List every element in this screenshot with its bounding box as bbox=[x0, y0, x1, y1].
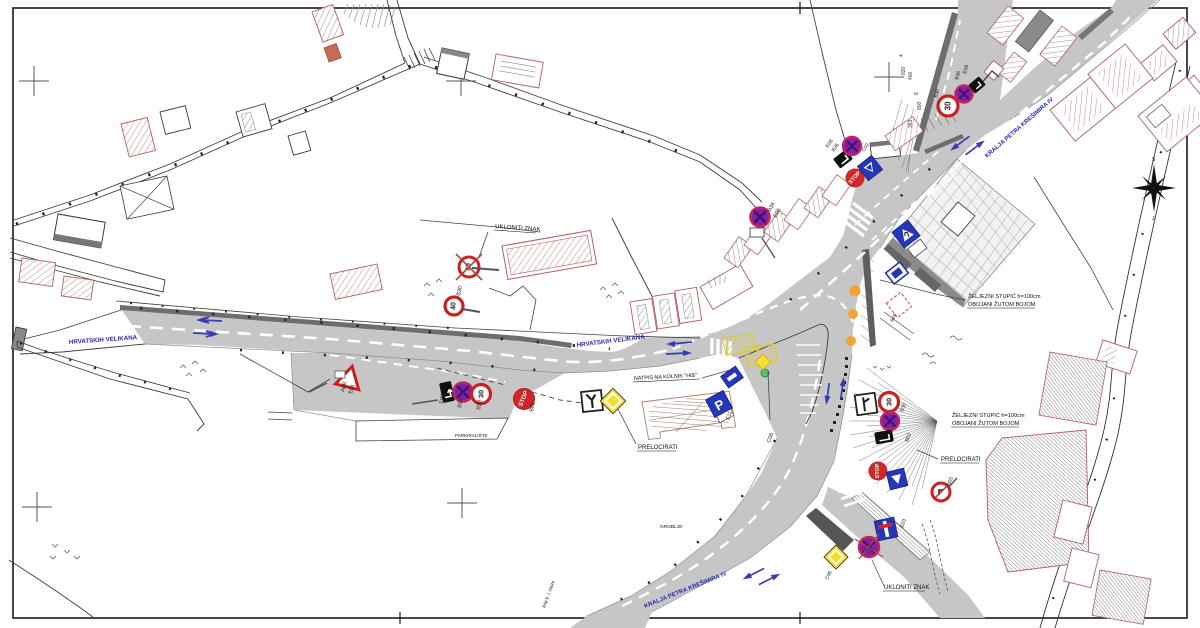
svg-text:8: 8 bbox=[914, 92, 920, 95]
svg-text:ŽELJEZNI STUPIĆ h=100cm: ŽELJEZNI STUPIĆ h=100cm bbox=[952, 411, 1025, 419]
svg-text:30: 30 bbox=[885, 398, 894, 406]
svg-text:4: 4 bbox=[899, 54, 905, 57]
svg-text:GROBLJE: GROBLJE bbox=[660, 524, 682, 530]
svg-text:PRELOCIRATI: PRELOCIRATI bbox=[941, 457, 981, 463]
svg-text:30: 30 bbox=[944, 101, 953, 110]
svg-text:400: 400 bbox=[908, 71, 914, 80]
svg-text:40: 40 bbox=[451, 302, 458, 310]
svg-text:PRELOCIRATI: PRELOCIRATI bbox=[638, 445, 678, 451]
svg-text:STOP: STOP bbox=[875, 463, 881, 478]
svg-text:30: 30 bbox=[477, 390, 486, 398]
svg-text:820: 820 bbox=[901, 66, 907, 75]
svg-text:OBOJANI ŽUTOM BOJOM: OBOJANI ŽUTOM BOJOM bbox=[952, 419, 1020, 427]
svg-text:ŽELJEZNI STUPIĆ h=100cm: ŽELJEZNI STUPIĆ h=100cm bbox=[968, 292, 1041, 300]
svg-text:PARKIRALIŠTE: PARKIRALIŠTE bbox=[455, 432, 488, 438]
svg-text:UKLONITI ZNAK: UKLONITI ZNAK bbox=[884, 585, 929, 591]
svg-text:OBOJANI ŽUTOM BOJOM: OBOJANI ŽUTOM BOJOM bbox=[968, 300, 1036, 308]
svg-text:363: 363 bbox=[908, 119, 914, 128]
svg-text:800: 800 bbox=[917, 101, 923, 110]
